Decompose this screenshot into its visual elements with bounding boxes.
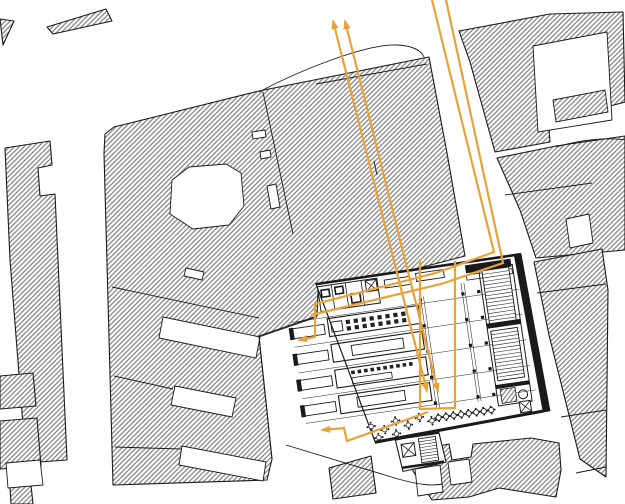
column <box>465 318 469 322</box>
column <box>434 401 438 405</box>
stall-grid-cell <box>396 364 400 368</box>
column <box>477 290 481 294</box>
stall-grid-cell <box>385 314 390 319</box>
stall-grid-cell <box>386 320 391 325</box>
service-room <box>500 387 517 403</box>
stall-grid-cell <box>389 365 393 369</box>
white-outline-west <box>6 460 43 488</box>
column <box>484 341 488 345</box>
white-cut-south-1 <box>415 465 443 496</box>
page <box>0 0 625 504</box>
courtyard-octagon <box>170 164 244 229</box>
column <box>472 369 476 373</box>
column-round <box>443 414 449 420</box>
table <box>406 423 411 428</box>
table <box>369 424 374 429</box>
shaft <box>519 400 531 412</box>
column-round <box>488 407 494 413</box>
table <box>429 418 434 423</box>
stall-grid-cell <box>346 326 351 331</box>
stall-grid-cell <box>361 317 366 322</box>
stall-grid-cell <box>378 321 383 326</box>
stall-grid-cell <box>357 369 361 373</box>
stall-grid-cell <box>353 318 358 323</box>
stall-grid-cell <box>377 367 381 371</box>
column <box>469 344 473 348</box>
parcel-sliver-1 <box>252 130 266 139</box>
column-round <box>451 413 457 419</box>
stall-grid-cell <box>346 320 351 325</box>
stall-grid-cell <box>401 311 406 316</box>
stall-grid-cell <box>377 315 382 320</box>
column <box>461 292 465 296</box>
stall-grid-cell <box>409 362 413 366</box>
column <box>492 393 496 397</box>
stall-grid-cell <box>402 363 406 367</box>
stair-run <box>418 436 438 462</box>
parcel-sliver-2 <box>260 150 271 159</box>
stall-grid-cell <box>402 318 407 323</box>
column <box>481 315 485 319</box>
column-round <box>466 410 472 416</box>
stall-grid-cell <box>351 370 355 374</box>
stall-grid-cell <box>383 366 387 370</box>
stall-grid-cell <box>370 322 375 327</box>
column-round <box>481 408 487 414</box>
site-plan-drawing <box>0 0 625 504</box>
column-round <box>458 411 464 417</box>
block-west-a <box>0 373 36 409</box>
column <box>476 395 480 399</box>
white-cut-east <box>566 214 593 248</box>
stall-grid-cell <box>369 316 374 321</box>
table <box>394 431 399 436</box>
stall-grid-cell <box>393 313 398 318</box>
white-cut-south-2 <box>448 459 472 485</box>
column-round <box>473 409 479 415</box>
column <box>488 367 492 371</box>
column <box>430 375 434 379</box>
stall-grid-cell <box>370 368 374 372</box>
stall-grid-cell <box>394 319 399 324</box>
table <box>376 435 381 440</box>
shaft <box>401 443 416 458</box>
stall-grid-cell <box>364 368 368 372</box>
stall-grid-cell <box>354 325 359 330</box>
stall-grid-cell <box>362 324 367 329</box>
